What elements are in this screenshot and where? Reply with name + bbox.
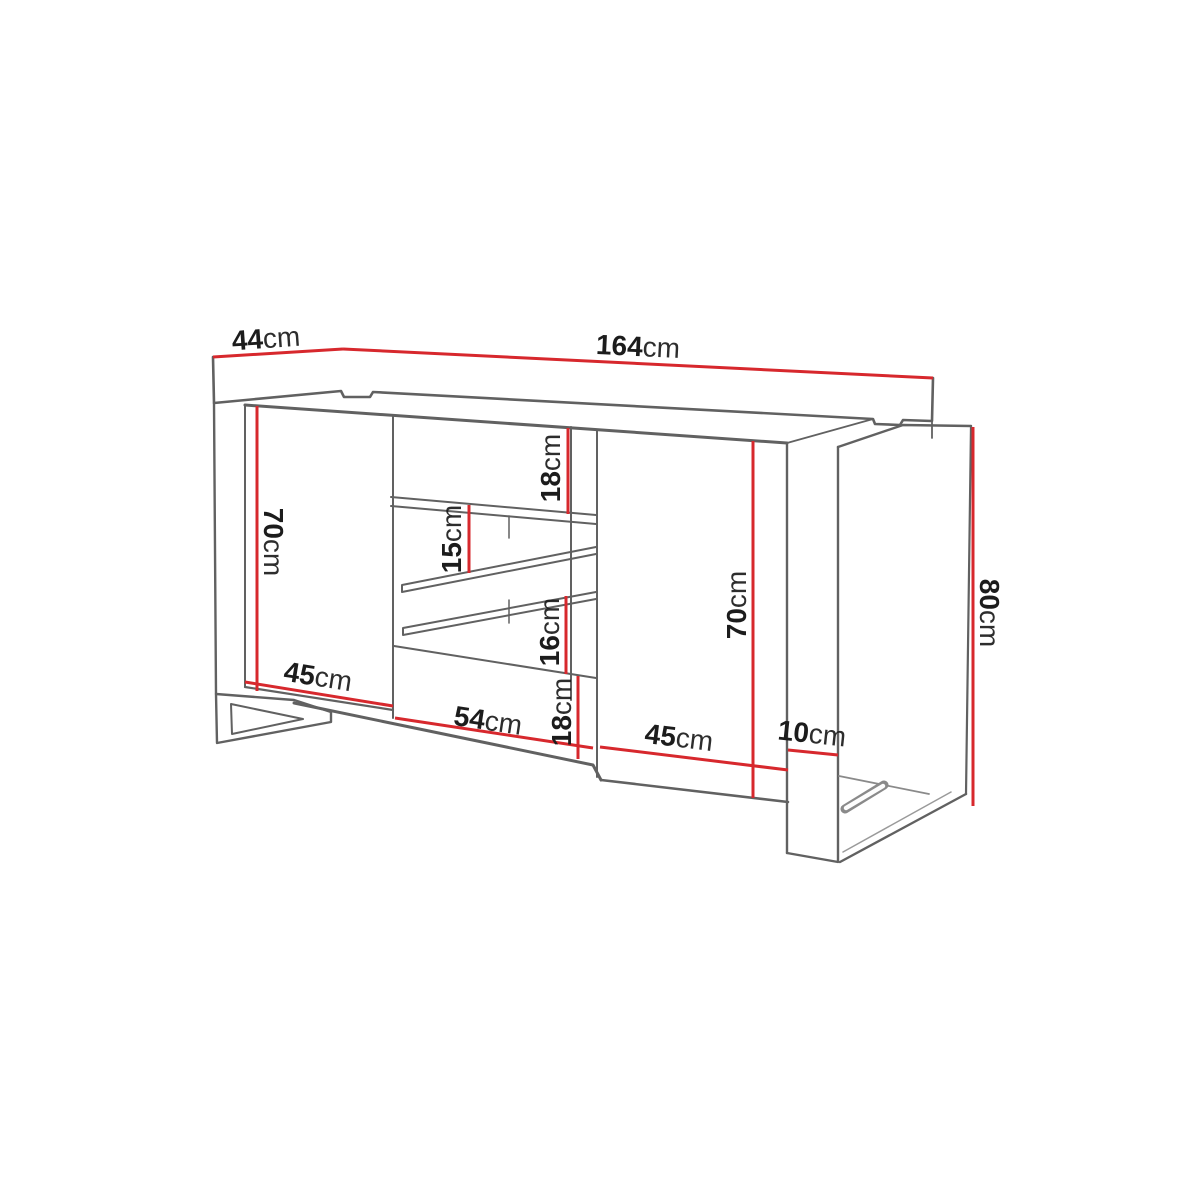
top-drawer-gap-edge — [391, 506, 596, 524]
dim-unit: cm — [642, 331, 681, 364]
right-door-bottom-edge — [601, 780, 788, 802]
dim-unit: cm — [258, 539, 289, 576]
dim-unit: cm — [313, 661, 355, 697]
dim-unit: cm — [483, 705, 525, 741]
dim-value: 15 — [436, 542, 467, 573]
dim-label-leg-10: 10cm — [776, 716, 847, 751]
dim-label-bottom-drawer-18: 18cm — [548, 678, 576, 746]
diagram-canvas: 44cm 164cm 80cm 70cm 70cm 18cm 15cm 16cm… — [0, 0, 1200, 1200]
left-leg-outline — [216, 694, 331, 743]
right-side-slot — [845, 785, 884, 809]
shelf-upper — [402, 547, 596, 592]
dim-value: 16 — [534, 635, 565, 666]
dim-unit: cm — [535, 434, 566, 471]
right-side-top-edge — [838, 425, 971, 447]
dim-value: 80 — [974, 579, 1005, 610]
dim-unit: cm — [721, 571, 752, 608]
dim-value: 10 — [776, 715, 810, 749]
right-side-right-edge — [966, 426, 971, 794]
dim-value: 18 — [546, 715, 577, 746]
dim-label-shelf-15: 15cm — [438, 505, 466, 573]
slot-inner — [846, 786, 883, 808]
dim-value: 45 — [282, 656, 318, 691]
top-panel — [213, 357, 933, 425]
dim-label-height-80: 80cm — [975, 579, 1003, 647]
dim-value: 18 — [535, 471, 566, 502]
dim-unit: cm — [974, 610, 1005, 647]
dim-value: 70 — [721, 608, 752, 639]
dim-value: 70 — [258, 508, 289, 539]
cabinet-outline — [213, 357, 971, 862]
dim-label-right-height-70: 70cm — [723, 571, 751, 639]
dim-unit: cm — [534, 598, 565, 635]
dim-label-shelf-16: 16cm — [536, 598, 564, 666]
dim-value: 54 — [452, 700, 487, 735]
dim-unit: cm — [674, 722, 715, 757]
dim-unit: cm — [546, 678, 577, 715]
dim-label-width-164: 164cm — [595, 331, 680, 363]
dim-label-left-height-70: 70cm — [259, 508, 287, 576]
dim-value: 164 — [595, 329, 643, 362]
dim-unit: cm — [807, 718, 847, 753]
dim-value: 45 — [643, 718, 678, 753]
left-side-edge — [214, 403, 216, 694]
cabinet-technical-drawing — [0, 0, 1200, 1200]
right-leg-panel — [787, 447, 838, 862]
dim-label-top-drawer-18: 18cm — [537, 434, 565, 502]
dim-unit: cm — [262, 321, 301, 355]
dim-unit: cm — [436, 505, 467, 542]
dim-label-depth-44: 44cm — [231, 323, 301, 356]
dim-value: 44 — [231, 323, 264, 356]
